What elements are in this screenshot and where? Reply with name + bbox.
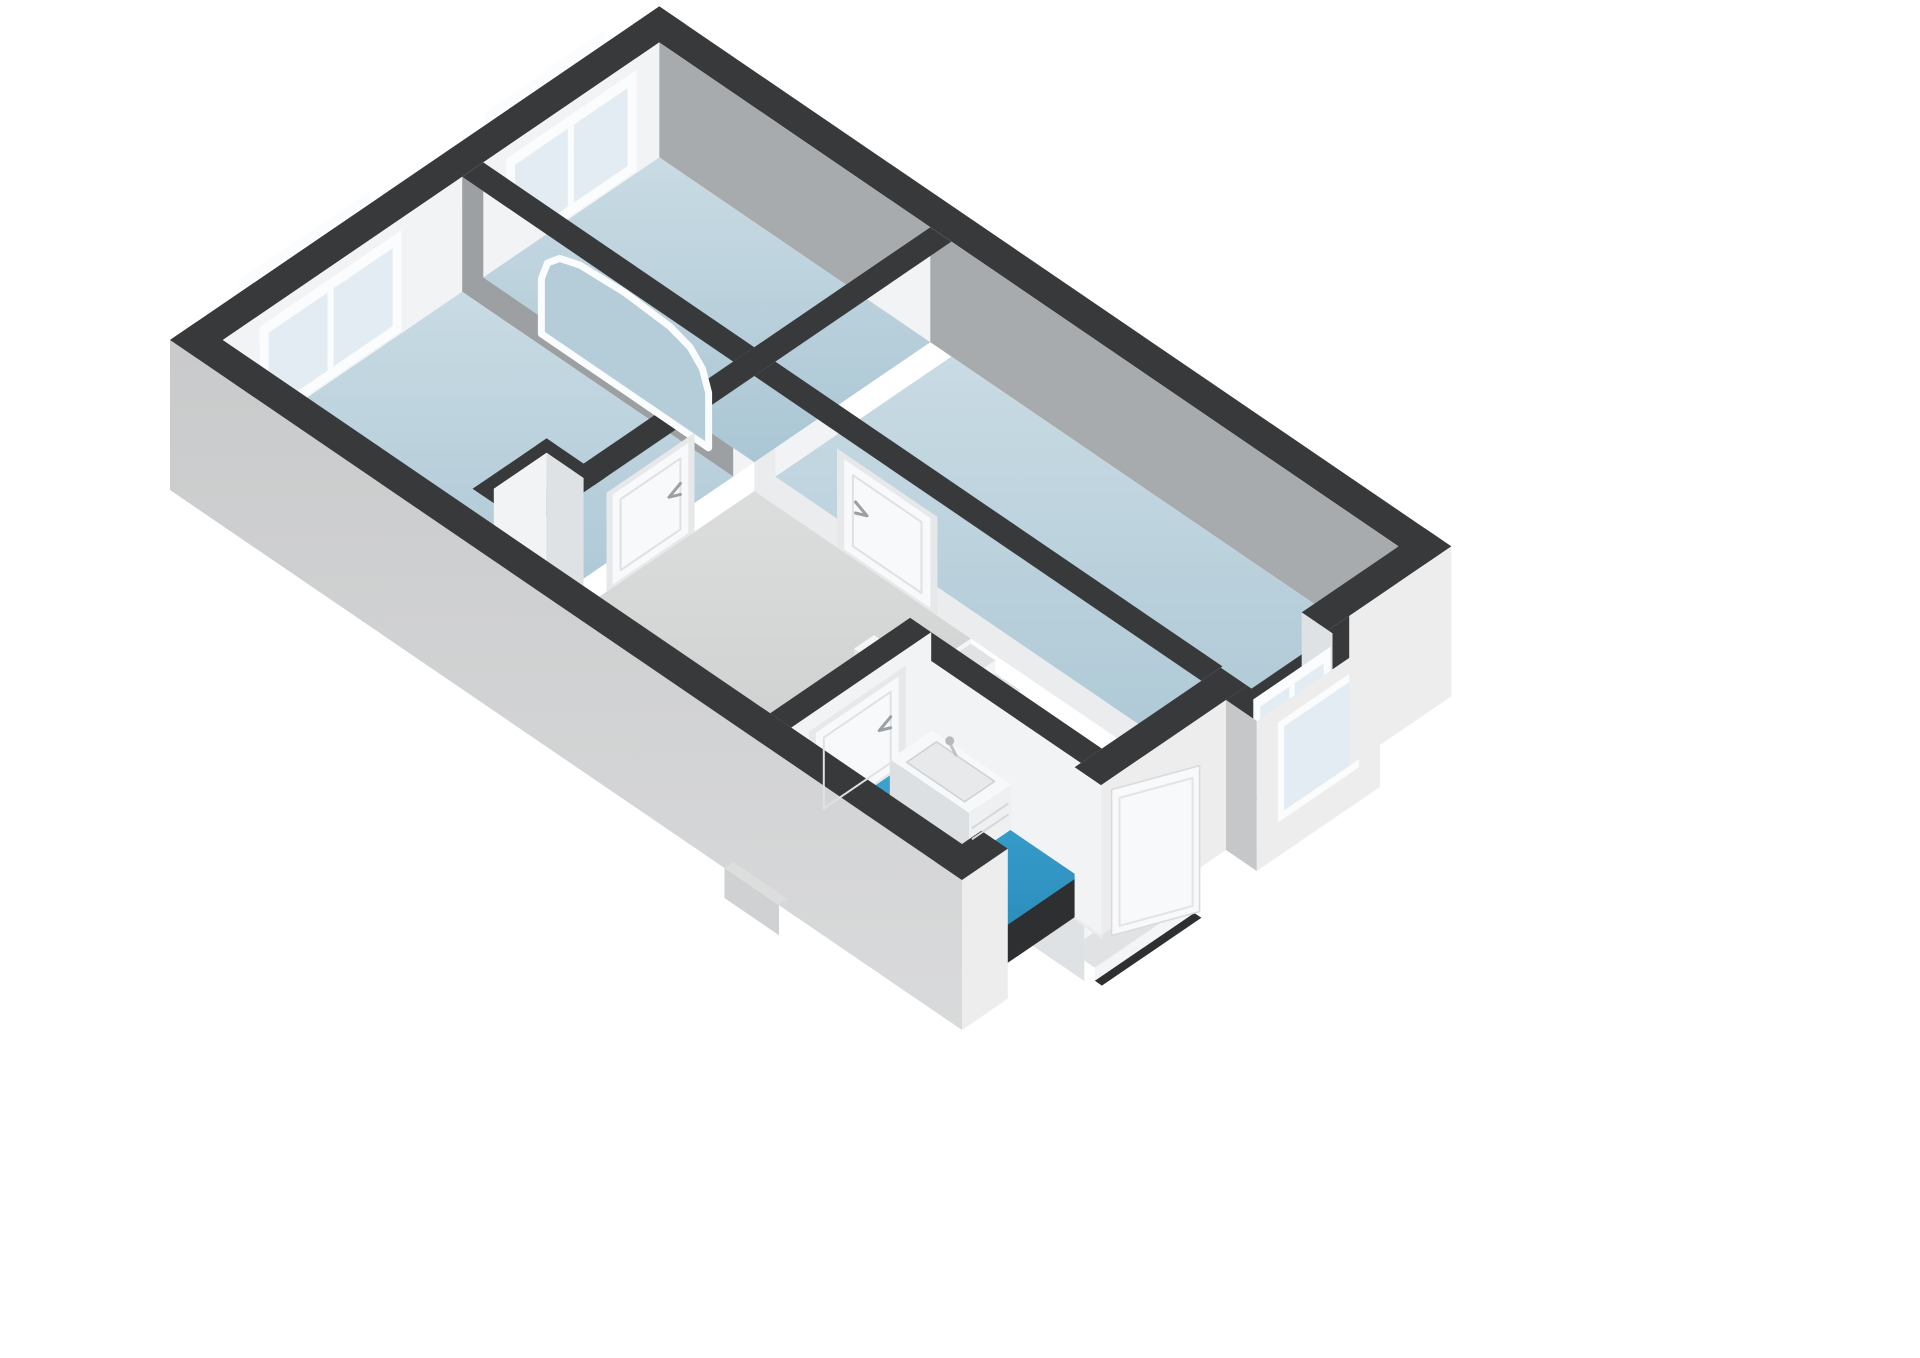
floorplan-page (0, 0, 1920, 1358)
faucet (945, 736, 954, 745)
floorplan-3d (0, 0, 1920, 1358)
entry-door-leaf (1112, 766, 1200, 936)
se-outer-face-a (962, 849, 1008, 1030)
window-1-mullion (328, 288, 334, 370)
floorplan-geometry (170, 6, 1451, 1030)
bay-outer-west-face (1226, 700, 1257, 871)
doorway-reveal (1075, 767, 1101, 935)
window-2-mullion (568, 125, 574, 207)
